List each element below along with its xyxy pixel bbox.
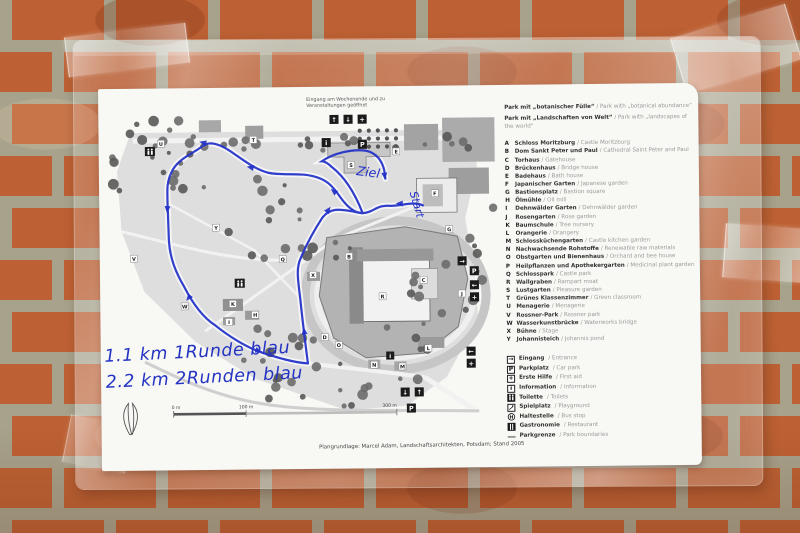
- legend-label-en: / Waterworks bridge: [581, 318, 637, 327]
- legend-label-de: Erste Hilfe: [519, 374, 552, 384]
- svg-text:→: →: [459, 257, 465, 265]
- legend-key: U: [506, 303, 516, 311]
- legend-label-en: / Dehnwälder garden: [579, 204, 638, 213]
- svg-text:U: U: [159, 142, 163, 148]
- photo-of-park-map-on-brick-wall: Eingang am Wochenende und zu Veranstaltu…: [0, 0, 800, 533]
- legend-key: V: [506, 311, 516, 319]
- svg-text:←: ←: [468, 348, 474, 356]
- svg-text:+: +: [472, 293, 477, 301]
- arrow-up-icon: ↑: [329, 115, 338, 124]
- arrow-down-icon: ↓: [401, 387, 410, 396]
- svg-text:↑: ↑: [331, 116, 336, 124]
- legend-key: Q: [506, 271, 516, 279]
- toilet-icon: [507, 394, 515, 402]
- legend-item: YJohannisteich/ Johannis pond: [507, 334, 697, 344]
- legend-label-en: / First aid: [556, 373, 582, 383]
- legend-label-de: Johannisteich: [517, 335, 560, 344]
- svg-text:J: J: [460, 291, 463, 297]
- parking-icon: P: [358, 140, 367, 149]
- entrance-arrow-icon: →: [507, 356, 515, 364]
- legend-label-de: Toilette: [519, 393, 543, 403]
- legend-label-en: / Car park: [553, 364, 581, 374]
- legend-key: J: [505, 213, 515, 221]
- legend-label-en: / Japanese garden: [577, 180, 628, 189]
- legend-key: E: [505, 173, 515, 181]
- svg-text:R: R: [381, 294, 385, 300]
- information-icon: i: [507, 385, 515, 393]
- park-map-sheet: Eingang am Wochenende und zu Veranstaltu…: [98, 83, 702, 471]
- svg-text:+: +: [468, 360, 473, 368]
- legend-label-de: Haltestelle: [519, 412, 553, 422]
- svg-text:Y: Y: [213, 226, 218, 232]
- toilet-icon: [145, 147, 155, 156]
- legend-label-de: Torhaus: [515, 156, 540, 164]
- first-aid-icon: +: [467, 359, 476, 368]
- svg-text:P: P: [472, 267, 477, 275]
- legend-key: C: [505, 156, 515, 164]
- legend-key: P: [506, 262, 516, 270]
- north-compass-icon: [124, 403, 138, 434]
- legend-label-de: Spielplatz: [519, 403, 550, 413]
- svg-text:↓: ↓: [402, 389, 407, 397]
- legend-label-en: / Playground: [555, 402, 590, 412]
- entrance-arrow-icon: →: [458, 256, 467, 265]
- svg-text:↓: ↓: [345, 116, 350, 124]
- legend-label-en: / Bus stop: [558, 412, 586, 422]
- arrow-left-icon: ←: [467, 347, 476, 356]
- legend-label-en: / Johannis pond: [561, 335, 604, 344]
- legend-title-2: Park mit „Landschaften von Welt“ / Park …: [504, 114, 694, 131]
- legend-label-en: / Bridge house: [558, 164, 599, 173]
- boundary-line-icon: [508, 432, 516, 440]
- tape-right: [722, 223, 800, 282]
- svg-text:P: P: [409, 405, 414, 413]
- svg-text:E: E: [394, 149, 398, 155]
- legend-key: H: [505, 197, 515, 205]
- legend-key: A: [505, 140, 515, 148]
- svg-text:I: I: [228, 320, 230, 326]
- legend-key: B: [505, 148, 515, 156]
- svg-text:G: G: [447, 227, 451, 233]
- svg-text:←: ←: [472, 281, 478, 289]
- legend-key: S: [506, 287, 516, 295]
- svg-text:i: i: [325, 139, 327, 147]
- legend-key: L: [506, 230, 516, 238]
- svg-text:S: S: [349, 163, 353, 169]
- parking-icon: P: [507, 365, 515, 373]
- first-aid-icon: +: [470, 292, 479, 301]
- parking-icon: P: [470, 266, 479, 275]
- svg-text:B: B: [347, 254, 351, 260]
- legend-icon-item: Parkgrenze/ Park boundaries: [508, 430, 698, 442]
- svg-text:↑: ↑: [417, 388, 422, 396]
- svg-text:V: V: [132, 257, 136, 263]
- first-aid-icon: +: [507, 375, 515, 383]
- legend-key: I: [505, 205, 515, 213]
- ziel-handwriting: Ziel: [355, 163, 382, 181]
- arrow-left-icon: ←: [470, 280, 479, 289]
- first-aid-icon: +: [358, 115, 367, 124]
- svg-text:X: X: [311, 273, 315, 279]
- svg-text:+: +: [359, 116, 364, 124]
- legend-label-en: / Restaurant: [564, 421, 598, 431]
- legend-label-de: Gastronomie: [520, 422, 560, 432]
- legend-title-1: Park mit „botanischer Fülle“ / Park with…: [504, 103, 694, 112]
- legend-label-en: / Cathedral Saint Peter and Paul: [600, 146, 689, 155]
- bus-stop-icon: H: [507, 413, 515, 421]
- legend-letter-list: ASchloss Moritzburg/ Castle MoritzburgBD…: [505, 138, 697, 344]
- legend-label-de: Parkplatz: [519, 364, 549, 374]
- svg-text:300 m: 300 m: [382, 403, 397, 409]
- arrow-up-icon: ↑: [415, 387, 424, 396]
- legend-key: X: [507, 328, 517, 336]
- map-credit-caption: Plangrundlage: Marcel Adam, Landschaftsa…: [272, 440, 572, 451]
- legend-key: R: [506, 279, 516, 287]
- legend-label-en: / Stage: [539, 327, 559, 335]
- legend-key: D: [505, 164, 515, 172]
- map-legend: Park mit „botanischer Fülle“ / Park with…: [504, 103, 698, 441]
- toilet-icon: [235, 279, 245, 288]
- svg-text:H: H: [253, 313, 257, 319]
- legend-key: W: [506, 319, 516, 327]
- legend-label-en: / Entrance: [548, 354, 577, 364]
- legend-label-de: Information: [519, 383, 556, 393]
- svg-text:P: P: [360, 141, 365, 149]
- legend-label-de: Baumschule: [515, 221, 553, 230]
- legend-label-en: / Information: [560, 383, 596, 393]
- legend-key: G: [505, 189, 515, 197]
- restaurant-icon: [508, 423, 516, 431]
- legend-label-en: / Green classroom: [590, 294, 641, 303]
- parking-icon: P: [407, 403, 416, 412]
- legend-label-de: Bühne: [517, 327, 537, 335]
- legend-icon-list: →Eingang/ EntrancePParkplatz/ Car park+E…: [507, 353, 698, 441]
- svg-text:C: C: [422, 278, 426, 284]
- legend-key: T: [506, 295, 516, 303]
- legend-label-en: / Bastion square: [560, 188, 605, 197]
- playground-icon: [507, 404, 515, 412]
- legend-key: F: [505, 181, 515, 189]
- svg-text:0 m: 0 m: [172, 405, 181, 411]
- legend-label-en: / Medicinal plant garden: [627, 260, 695, 269]
- svg-text:F: F: [433, 191, 437, 197]
- legend-label-de: Eingang: [519, 355, 545, 365]
- legend-label-en: / Orangery: [549, 229, 579, 237]
- legend-key: K: [505, 222, 515, 230]
- legend-label-en: / Toilets: [547, 393, 568, 403]
- legend-key: Y: [507, 336, 517, 344]
- svg-text:W: W: [182, 304, 188, 310]
- legend-key: M: [506, 238, 516, 246]
- legend-key: N: [506, 246, 516, 254]
- svg-text:H: H: [510, 415, 514, 421]
- legend-key: O: [506, 254, 516, 262]
- legend-label-en: / Oil mill: [543, 197, 566, 205]
- arrow-down-icon: ↓: [343, 115, 352, 124]
- legend-label-de: Ölmühle: [515, 197, 541, 205]
- info-icon: i: [322, 138, 331, 147]
- svg-text:100 m: 100 m: [239, 404, 254, 410]
- legend-label-en: / Tree nursery: [556, 221, 595, 230]
